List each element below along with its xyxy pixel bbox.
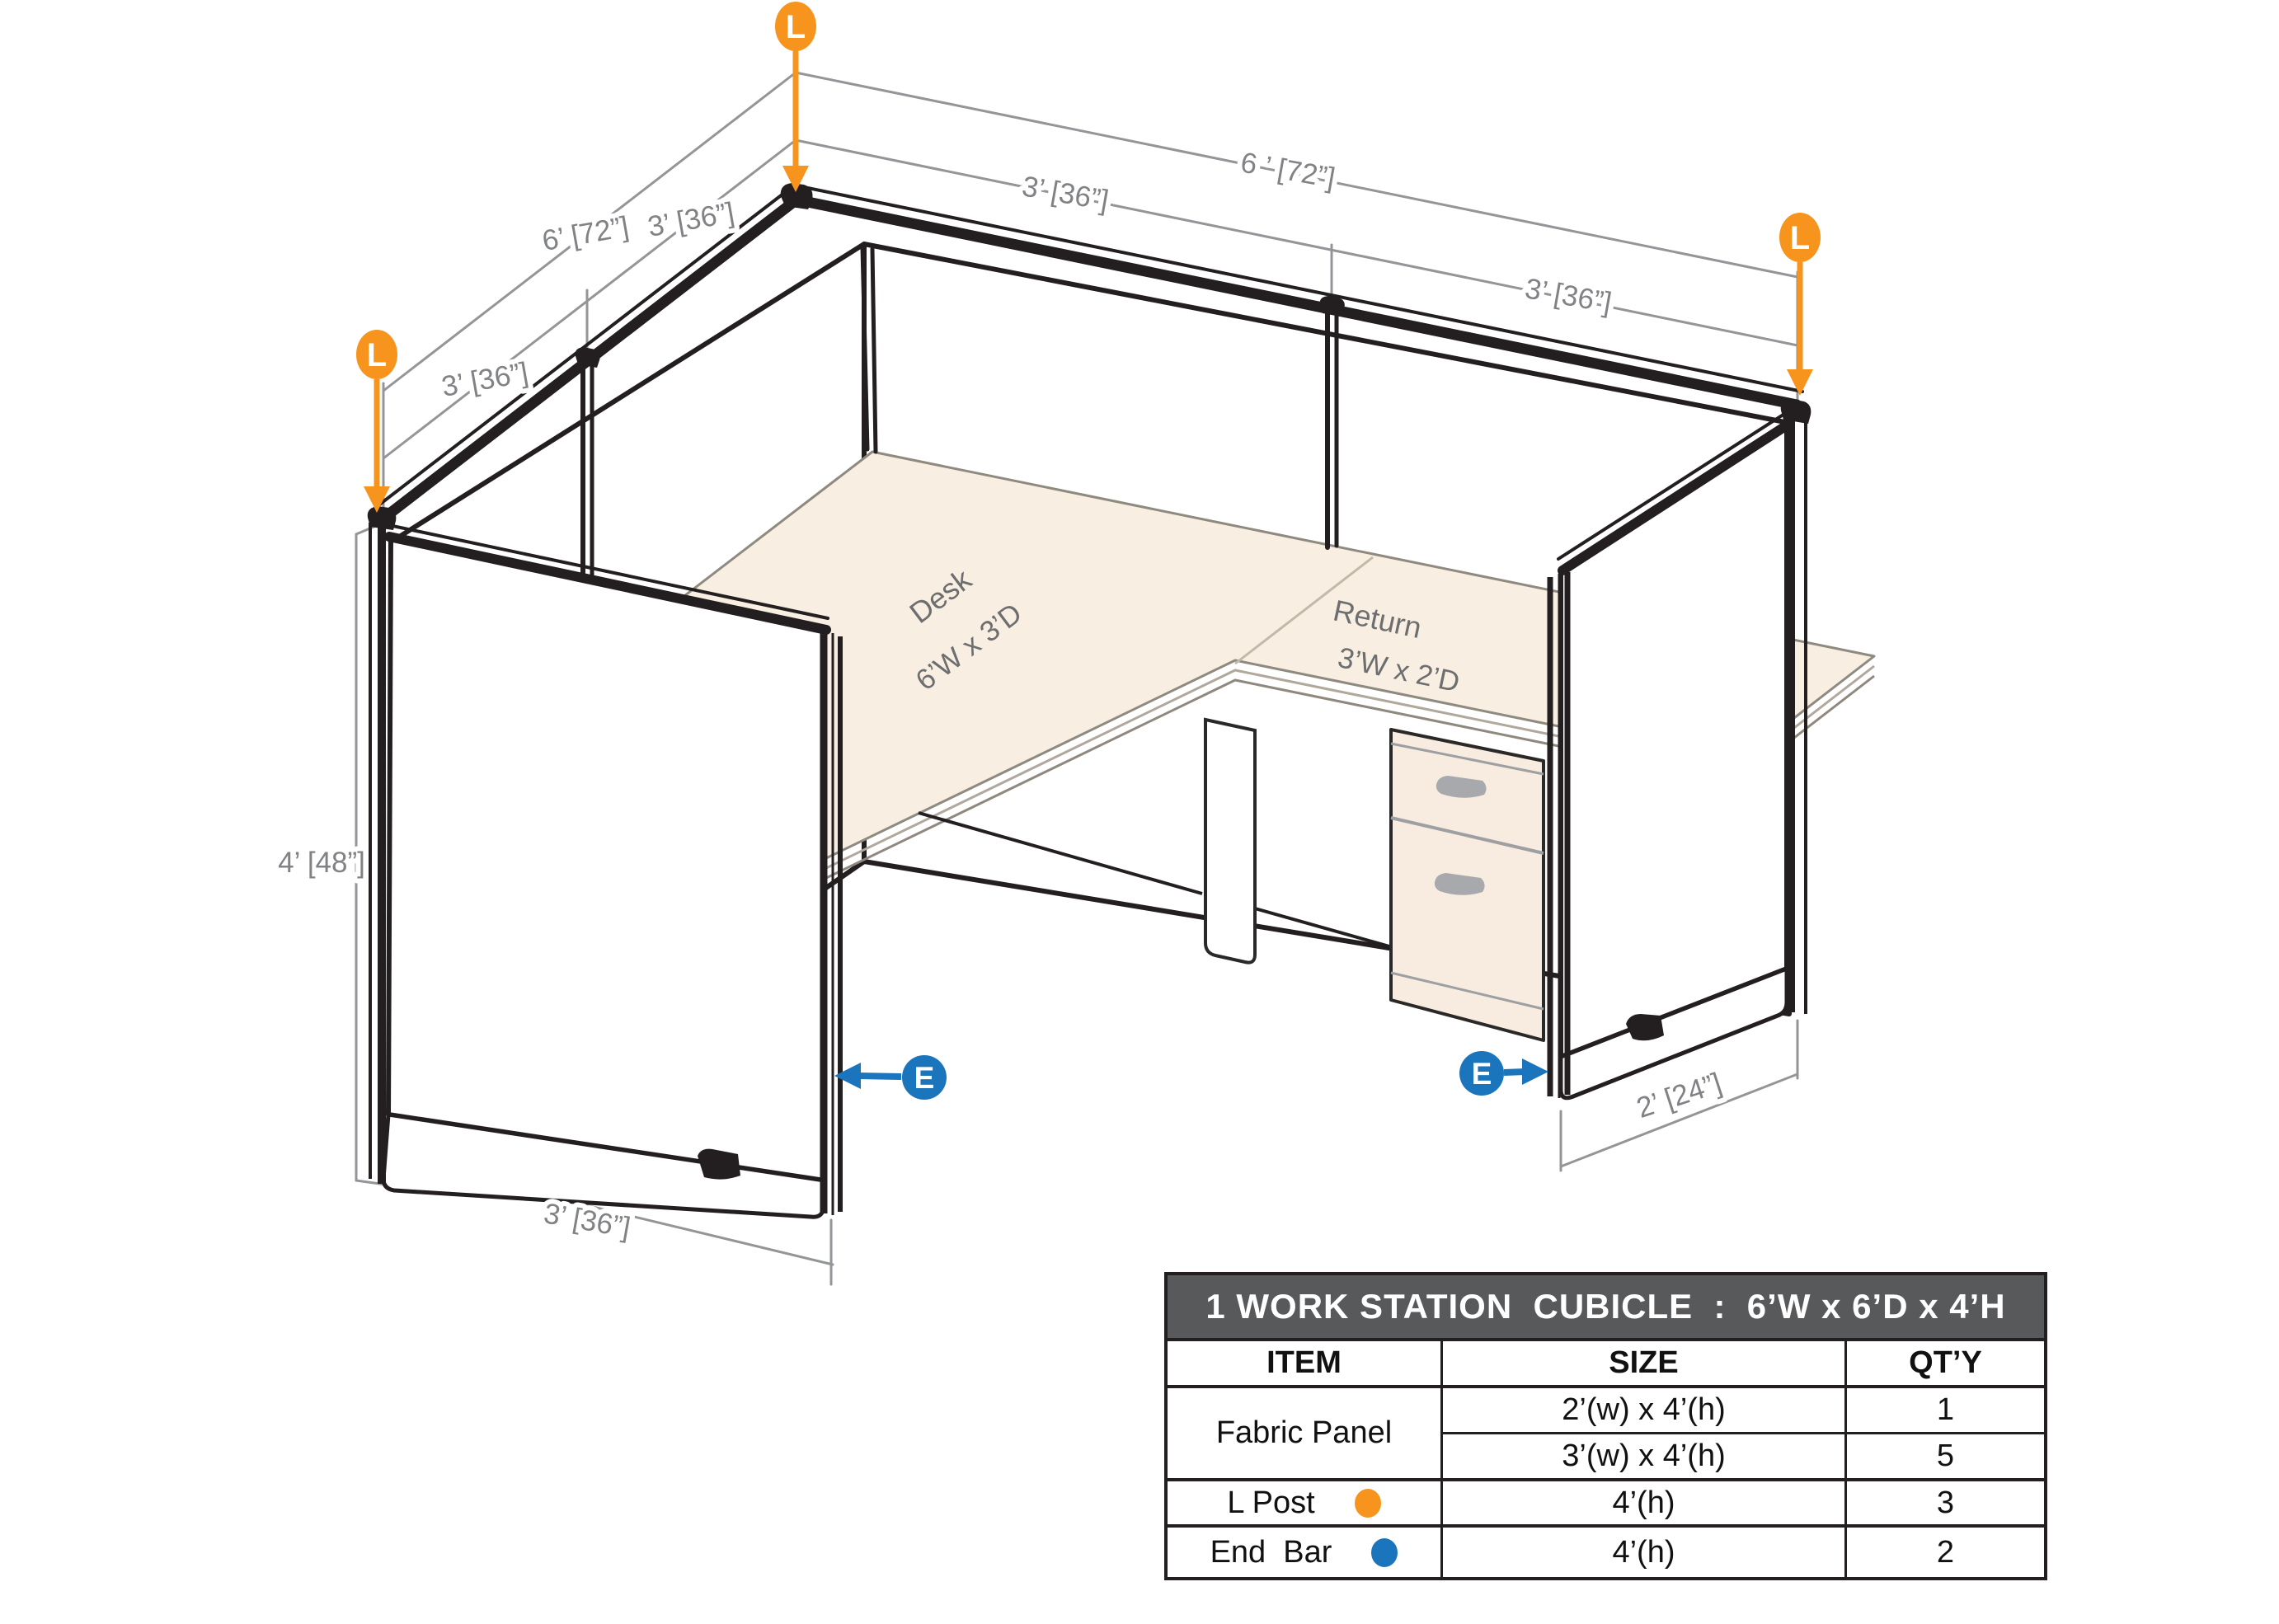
marker-letter: L [786, 9, 806, 45]
dim-label-left-seg-a: 3’ [36”] [646, 196, 737, 243]
item-label: Fabric Panel [1216, 1415, 1392, 1451]
dim-label-left-total: 6’ [72”] [540, 210, 632, 257]
table-title: 1 WORK STATION CUBICLE : 6’W x 6’D x 4’H [1168, 1275, 2044, 1341]
cell-size-end-bar: 4’(h) [1443, 1528, 1847, 1577]
dim-label-right-seg-a: 3’ [36”] [1020, 170, 1111, 217]
cell-qty-fabric-2ft: 1 [1847, 1388, 2044, 1434]
dim-label-right-total: 6 ’ [72”] [1238, 146, 1337, 194]
cell-size-fabric-2ft: 2’(w) x 4’(h) [1443, 1388, 1847, 1434]
end-bar-legend-dot [1371, 1538, 1398, 1567]
cell-item-l-post: L Post [1168, 1481, 1443, 1528]
column-header-item: ITEM [1168, 1341, 1443, 1388]
kick-plate-vent [698, 1149, 740, 1180]
marker-arrowhead [1522, 1058, 1548, 1085]
cell-size-fabric-3ft: 3’(w) x 4’(h) [1443, 1434, 1847, 1481]
dim-label-left-seg-b: 3’ [36”] [439, 356, 531, 403]
marker-letter: L [1790, 220, 1810, 256]
cubicle-spec-table: 1 WORK STATION CUBICLE : 6’W x 6’D x 4’H… [1164, 1272, 2047, 1580]
column-header-size: SIZE [1443, 1341, 1847, 1388]
marker-letter: E [1472, 1057, 1492, 1091]
mid-post-right-cap [1320, 296, 1345, 317]
marker-letter: L [367, 337, 387, 373]
marker-stem [858, 1076, 901, 1077]
cell-qty-end-bar: 2 [1847, 1528, 2044, 1577]
pedestal [1391, 730, 1544, 1040]
dim-label-front-right-depth: 2’ [24”] [1633, 1067, 1726, 1124]
left-post-cap [368, 506, 397, 530]
kick-plate-vent [1626, 1014, 1664, 1040]
dim-label-height: 4’ [48”] [278, 847, 365, 879]
cell-qty-l-post: 3 [1847, 1481, 2044, 1528]
column-header-qty: QT’Y [1847, 1341, 2044, 1388]
end-bar-marker-right: E [1459, 1051, 1548, 1096]
item-label: End Bar [1210, 1535, 1332, 1570]
end-bar-marker-left: E [834, 1055, 947, 1100]
l-post-marker-left: L [356, 330, 397, 513]
item-label: L Post [1227, 1486, 1314, 1521]
return-support-leg [1205, 720, 1255, 963]
dim-label-right-seg-b: 3’ [36”] [1523, 272, 1614, 319]
cell-qty-fabric-3ft: 5 [1847, 1434, 2044, 1481]
l-post-marker-top: L [775, 2, 816, 192]
l-post-legend-dot [1355, 1489, 1381, 1518]
cell-item-end-bar: End Bar [1168, 1528, 1443, 1577]
cell-item-fabric-panel: Fabric Panel [1168, 1388, 1443, 1481]
marker-arrowhead [1787, 369, 1813, 396]
marker-letter: E [914, 1061, 935, 1095]
front-left-panel-face [388, 536, 825, 1180]
front-left-panel [368, 506, 840, 1217]
cubicle-spec-sheet: Desk 6’W x 3’D Return 3’W x 2’D [0, 0, 2279, 1624]
cell-size-l-post: 4’(h) [1443, 1481, 1847, 1528]
l-post-marker-right: L [1779, 213, 1821, 396]
